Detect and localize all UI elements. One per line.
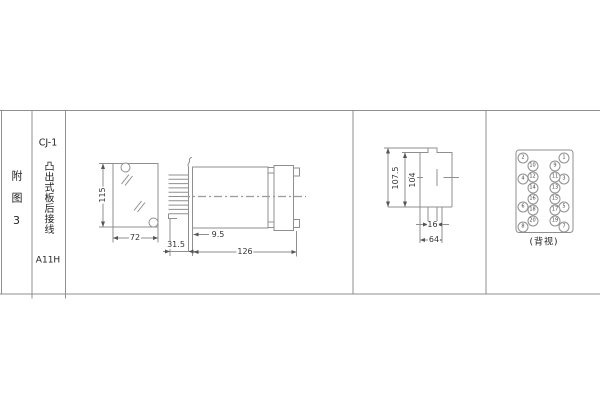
dim-16: 16: [426, 221, 438, 229]
terminal-19: 19: [550, 215, 561, 226]
terminal-14: 14: [527, 182, 538, 193]
terminal-1: 1: [559, 153, 570, 164]
terminal-17: 17: [550, 204, 561, 215]
terminal-11: 11: [550, 171, 561, 182]
terminal-7: 7: [559, 221, 570, 232]
figure-label: 附图3: [11, 170, 22, 238]
terminal-10: 10: [527, 160, 538, 171]
dim-115: 115: [99, 186, 107, 203]
dim-31-5: 31.5: [166, 241, 186, 249]
dim-9-5: 9.5: [211, 231, 226, 239]
terminal-13: 13: [550, 182, 561, 193]
terminal-20: 20: [527, 215, 538, 226]
terminal-15: 15: [550, 193, 561, 204]
dim-107-5: 107.5: [392, 165, 400, 190]
terminal-16: 16: [527, 193, 538, 204]
dim-126: 126: [236, 248, 253, 256]
dim-104: 104: [409, 171, 417, 188]
dim-72: 72: [129, 234, 141, 242]
terminal-9: 9: [550, 160, 561, 171]
mounting-type-label: 凸出式板后接线: [42, 161, 52, 235]
back-view-label: (背视): [529, 239, 558, 248]
terminal-12: 12: [527, 171, 538, 182]
terminal-layer: 1234567891011121314151617181920: [0, 0, 600, 400]
figure-page: 1234567891011121314151617181920 附图3 CJ-1…: [0, 0, 600, 400]
model-label: CJ-1: [39, 138, 58, 148]
type-code-label: A11H: [36, 257, 60, 266]
dim-64: 64: [428, 236, 440, 244]
terminal-18: 18: [527, 204, 538, 215]
